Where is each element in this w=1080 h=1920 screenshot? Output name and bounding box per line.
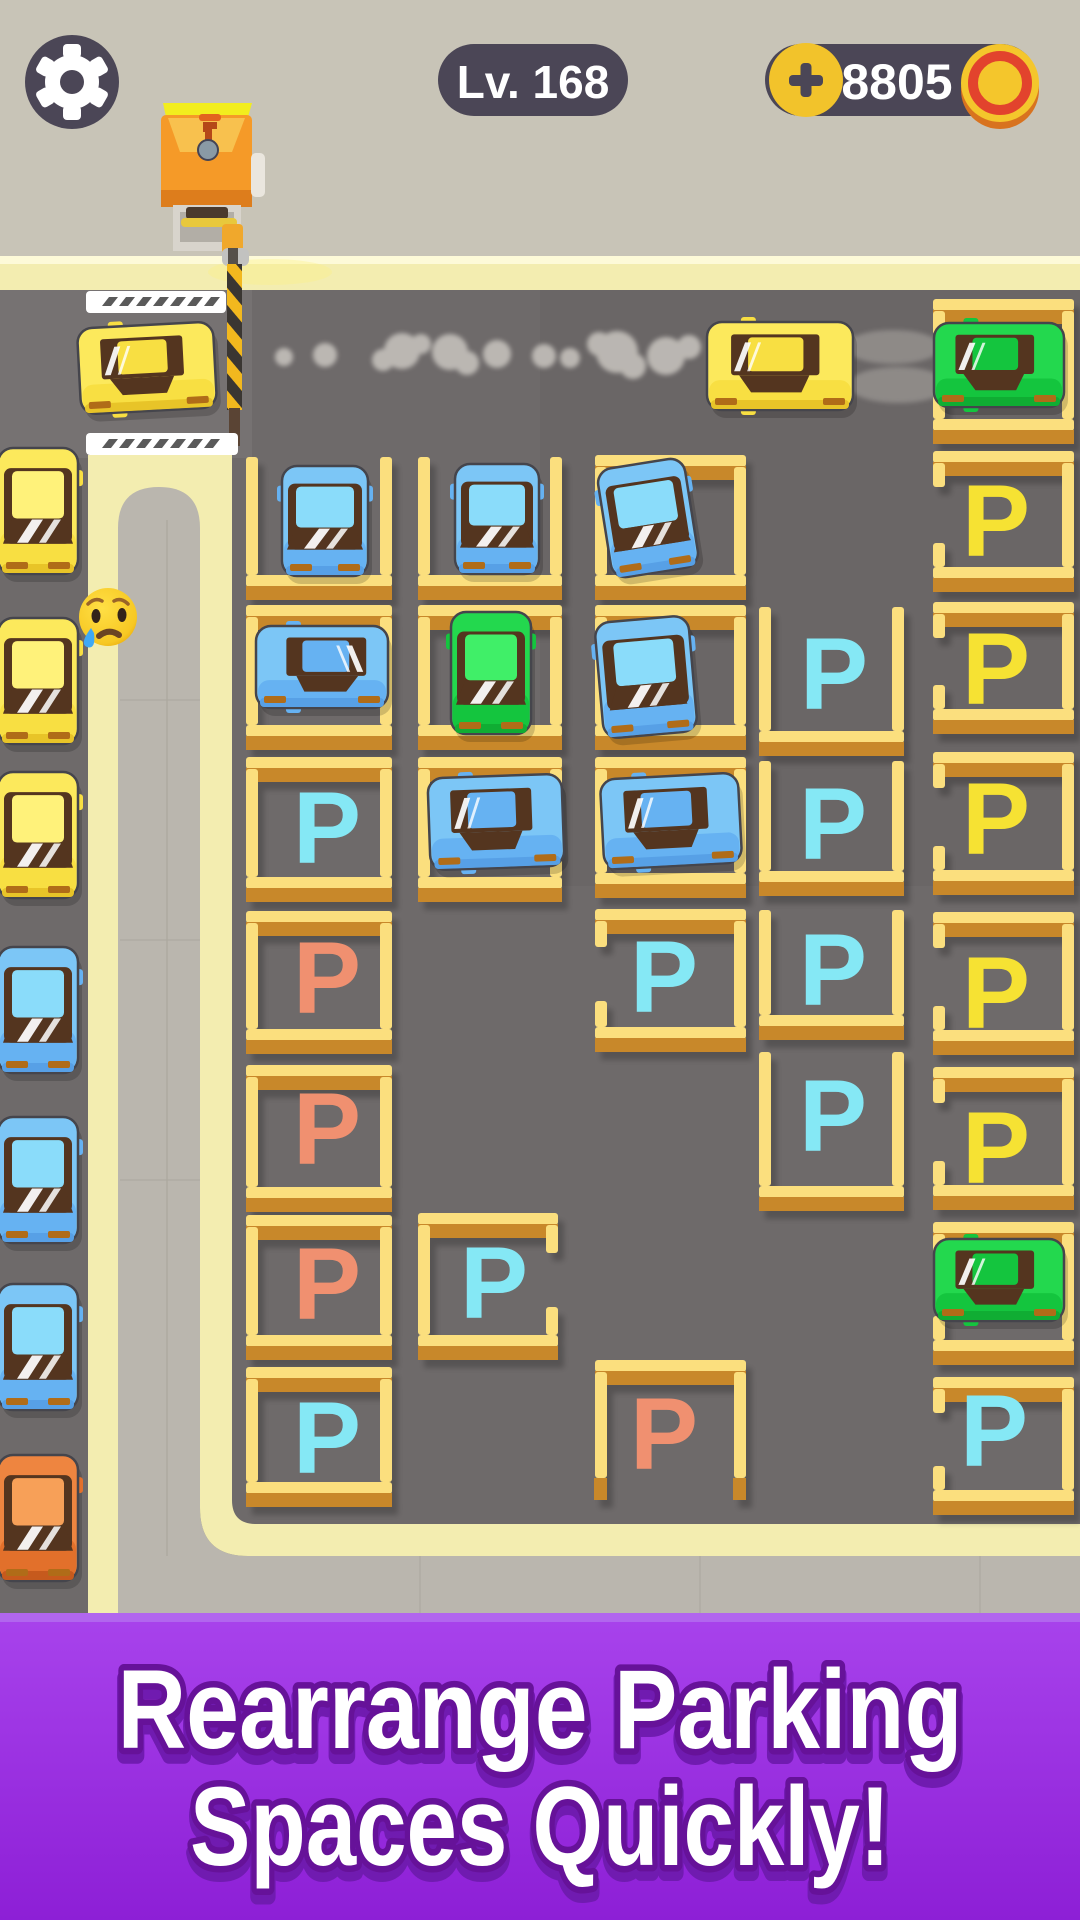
svg-text:P: P (800, 617, 868, 731)
svg-text:Lv. 168: Lv. 168 (457, 56, 610, 108)
svg-text:P: P (630, 920, 698, 1034)
svg-text:P: P (293, 1227, 361, 1341)
svg-text:Rearrange Parking: Rearrange Parking (118, 1647, 963, 1772)
svg-text:P: P (962, 464, 1030, 578)
svg-text:P: P (962, 936, 1030, 1050)
svg-text:P: P (460, 1226, 528, 1340)
svg-text:Spaces Quickly!: Spaces Quickly! (190, 1764, 890, 1889)
svg-text:P: P (960, 1374, 1028, 1488)
svg-text:P: P (962, 612, 1030, 726)
svg-text:P: P (293, 921, 361, 1035)
svg-text:P: P (293, 1381, 361, 1495)
svg-text:P: P (630, 1377, 698, 1491)
svg-text:P: P (799, 1059, 867, 1173)
svg-text:P: P (799, 913, 867, 1027)
svg-text:P: P (293, 771, 361, 885)
svg-text:P: P (962, 762, 1030, 876)
svg-text:P: P (962, 1091, 1030, 1205)
svg-text:P: P (799, 767, 867, 881)
svg-text:P: P (293, 1072, 361, 1186)
svg-text:8805: 8805 (841, 54, 952, 110)
